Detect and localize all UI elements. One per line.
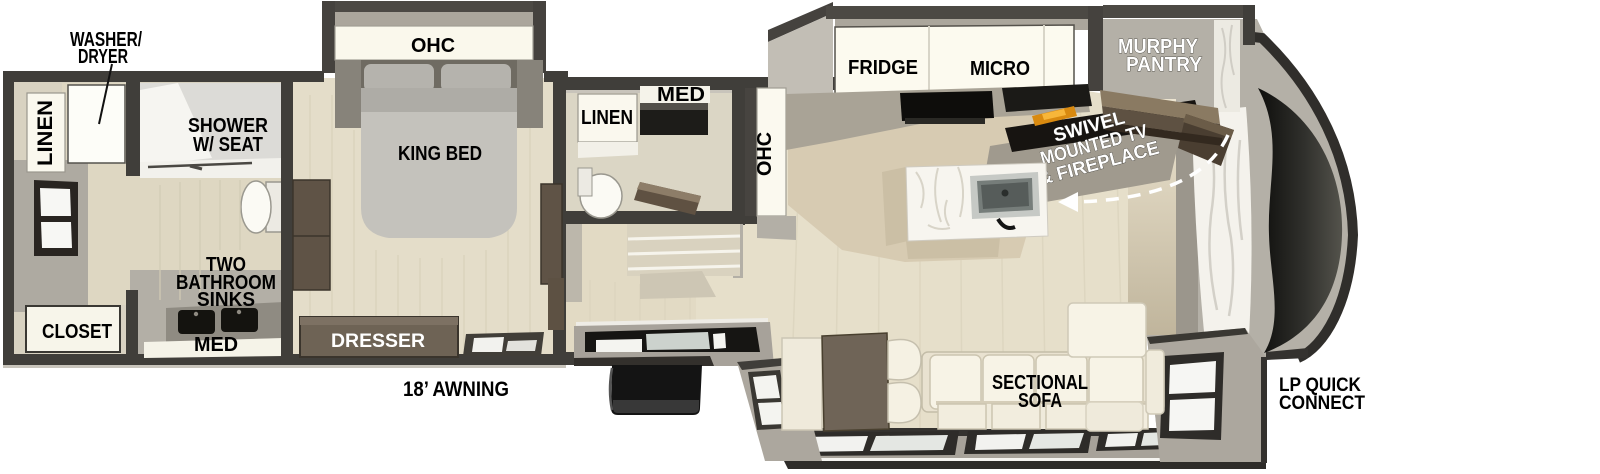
svg-text:18’ AWNING: 18’ AWNING [403,378,509,401]
svg-text:W/ SEAT: W/ SEAT [193,134,263,156]
svg-text:OHC: OHC [411,35,455,57]
svg-text:SOFA: SOFA [1018,390,1062,412]
svg-text:SINKS: SINKS [197,289,255,311]
svg-text:CLOSET: CLOSET [42,321,112,343]
svg-text:CONNECT: CONNECT [1279,393,1365,414]
svg-text:MICRO: MICRO [970,58,1030,80]
svg-text:DRYER: DRYER [78,46,128,68]
svg-text:LINEN: LINEN [581,107,633,129]
svg-text:MED: MED [657,84,705,106]
svg-text:LINEN: LINEN [34,100,57,166]
svg-text:OHC: OHC [754,132,776,176]
svg-text:PANTRY: PANTRY [1126,54,1203,76]
svg-text:KING BED: KING BED [398,143,482,165]
svg-text:MED: MED [194,334,238,356]
svg-text:DRESSER: DRESSER [331,331,425,352]
svg-text:FRIDGE: FRIDGE [848,57,918,79]
